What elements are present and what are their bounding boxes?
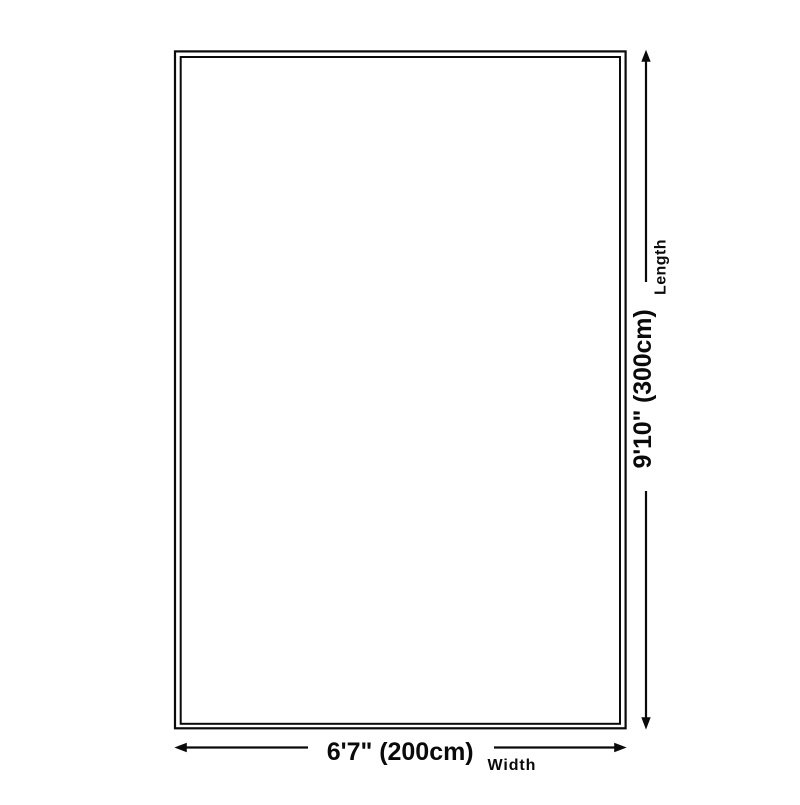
svg-text:6'7" (200cm): 6'7" (200cm) xyxy=(327,738,474,766)
svg-text:Length: Length xyxy=(653,239,670,295)
svg-text:Width: Width xyxy=(488,757,537,774)
svg-text:9'10" (300cm): 9'10" (300cm) xyxy=(629,310,657,469)
